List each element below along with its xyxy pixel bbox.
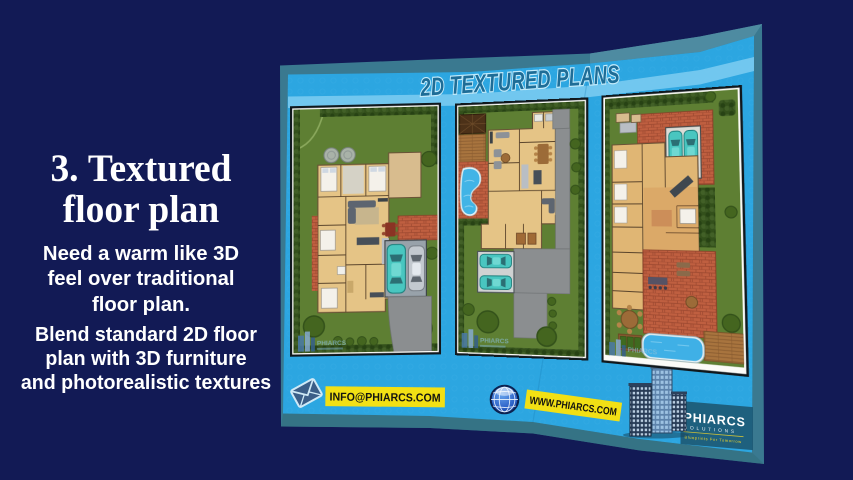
svg-text:PHIARCS: PHIARCS <box>317 340 347 348</box>
svg-text:PHIARCS: PHIARCS <box>480 338 509 346</box>
svg-text:INFO@PHIARCS.COM: INFO@PHIARCS.COM <box>330 392 441 405</box>
